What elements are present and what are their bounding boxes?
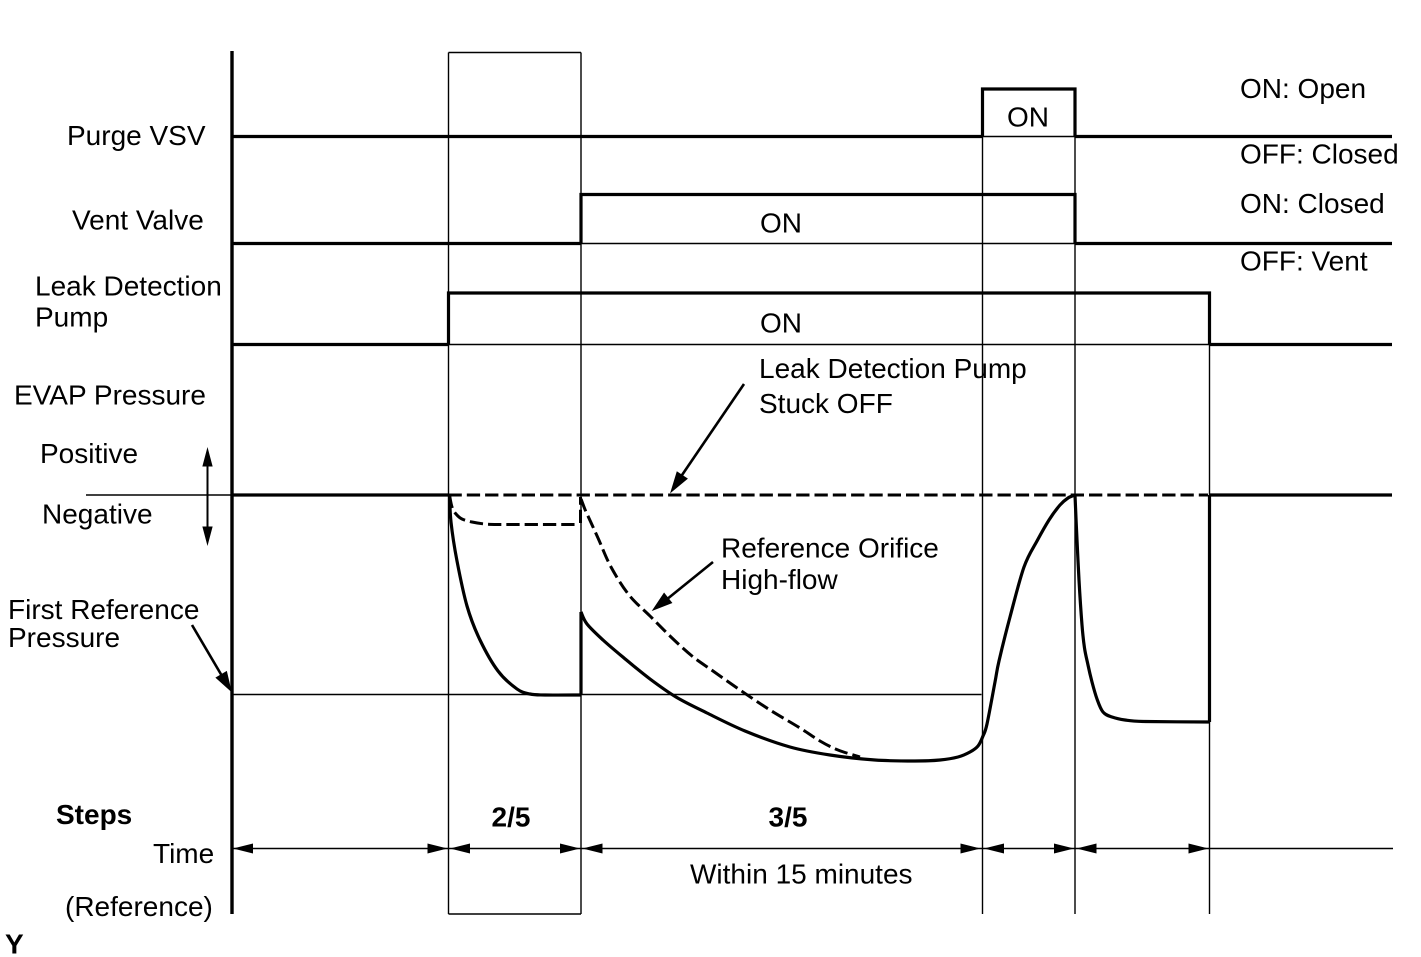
svg-text:OFF: Vent: OFF: Vent xyxy=(1240,246,1368,277)
svg-text:Leak Detection Pump: Leak Detection Pump xyxy=(759,353,1027,384)
svg-text:EVAP Pressure: EVAP Pressure xyxy=(14,380,206,411)
svg-text:Leak Detection: Leak Detection xyxy=(35,271,222,302)
svg-text:2/5: 2/5 xyxy=(492,802,531,833)
svg-text:ON: ON xyxy=(760,208,802,239)
svg-text:Time: Time xyxy=(153,838,214,869)
svg-text:ON: Closed: ON: Closed xyxy=(1240,188,1385,219)
svg-text:Negative: Negative xyxy=(42,499,153,530)
svg-text:Steps: Steps xyxy=(56,799,132,830)
svg-text:OFF: Closed: OFF: Closed xyxy=(1240,139,1399,170)
svg-text:Stuck OFF: Stuck OFF xyxy=(759,388,893,419)
svg-text:3/5: 3/5 xyxy=(769,802,808,833)
svg-text:Purge VSV: Purge VSV xyxy=(67,120,206,151)
svg-text:Vent Valve: Vent Valve xyxy=(72,205,204,236)
svg-text:Pump: Pump xyxy=(35,302,108,333)
svg-text:Within 15 minutes: Within 15 minutes xyxy=(690,859,913,890)
svg-text:ON: ON xyxy=(1007,102,1049,133)
svg-text:Positive: Positive xyxy=(40,438,138,469)
svg-text:Y: Y xyxy=(5,929,24,957)
svg-text:ON: ON xyxy=(760,308,802,339)
svg-text:First Reference: First Reference xyxy=(8,594,199,625)
svg-text:High-flow: High-flow xyxy=(721,564,838,595)
svg-text:ON: Open: ON: Open xyxy=(1240,73,1366,104)
svg-text:(Reference): (Reference) xyxy=(65,891,213,922)
svg-text:Pressure: Pressure xyxy=(8,622,120,653)
svg-text:Reference Orifice: Reference Orifice xyxy=(721,533,939,564)
